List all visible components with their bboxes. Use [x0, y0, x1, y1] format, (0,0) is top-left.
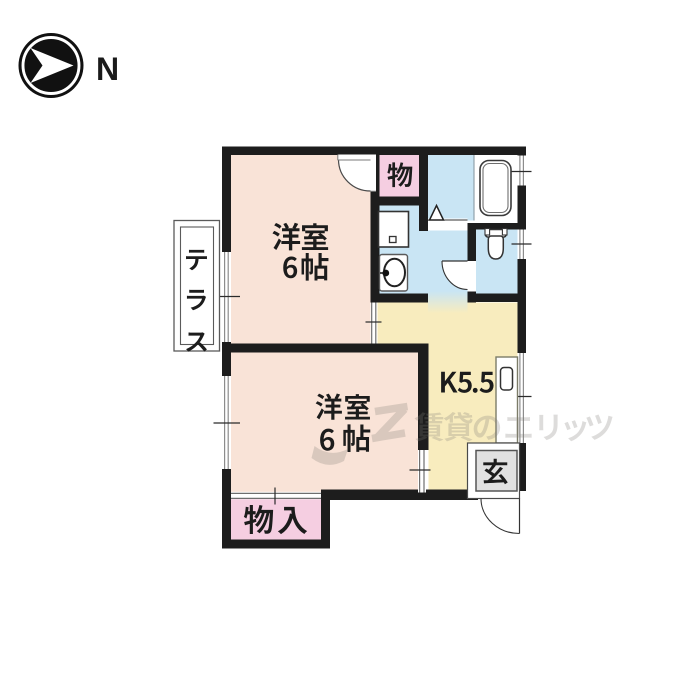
svg-text:N: N: [96, 51, 119, 87]
